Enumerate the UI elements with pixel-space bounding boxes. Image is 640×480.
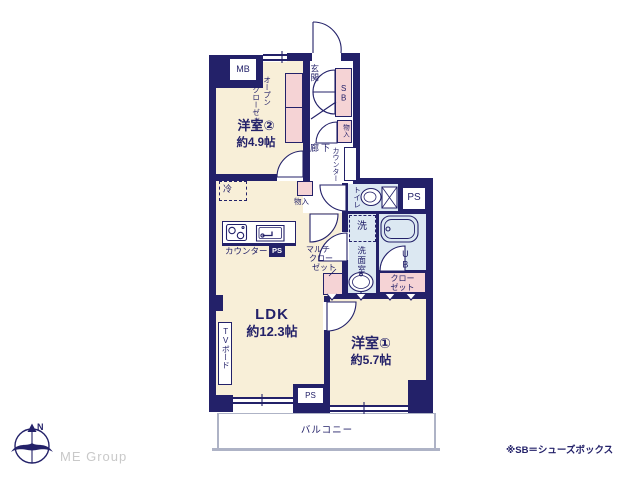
compass-arrowhead: [28, 424, 37, 433]
ps-top-label: PS: [402, 192, 426, 204]
kitchen-monoire-label: 物入: [294, 198, 309, 207]
closet-chevron: [385, 294, 395, 300]
yoshitsu1-size: 約5.7帖: [321, 354, 421, 368]
closet-label-line2: ゼット: [379, 283, 426, 292]
yoshitsu2-name: 洋室②: [206, 119, 306, 134]
mb-label: MB: [230, 64, 256, 74]
bathtub-drain: [386, 227, 390, 231]
stove-dot: [242, 227, 244, 229]
multi-closet-label-line3: ゼット: [312, 263, 336, 272]
fridge-label: 冷: [223, 184, 232, 194]
plan-graphics: [0, 0, 640, 480]
multi-closet-label-line2: クロー: [309, 254, 333, 263]
washroom-label: 洗面室: [356, 246, 366, 275]
genkan-label: 玄関: [309, 64, 319, 82]
sb-note: ※SB＝シューズボックス: [506, 446, 613, 457]
monoire-folding-door-icon: [316, 122, 337, 143]
ps-bottom-label: PS: [297, 391, 324, 400]
stove-burner: [237, 232, 243, 238]
ldk-size: 約12.3帖: [222, 325, 322, 340]
closet-chevron: [406, 294, 416, 300]
yoshitsu2-door-arc: [277, 151, 303, 177]
tv-board-label: TVボード: [221, 327, 230, 369]
floor-plan-image: MB 玄関 SB 物入 廊下 カウンター オープン クローゼット 洋室② 約4.…: [0, 0, 640, 480]
yoshitsu1-door-arc: [327, 302, 356, 331]
entrance-door-arc: [313, 22, 341, 53]
multi-closet-label-line1: マルチ: [306, 245, 330, 254]
closet-chevron: [356, 294, 366, 300]
closet-chevron: [327, 294, 337, 300]
corridor-counter-label: カウンター: [331, 147, 339, 182]
compass-n-label: N: [37, 422, 44, 432]
sb-label: SB: [339, 84, 348, 103]
balcony-label: バルコニー: [277, 426, 377, 437]
closet-label-line1: クロー: [379, 274, 426, 283]
entrance-monoire-label: 物入: [341, 124, 348, 138]
stove-burner: [229, 227, 235, 233]
yoshitsu2-size: 約4.9帖: [206, 137, 306, 150]
washer-label: 洗: [357, 221, 367, 233]
open-closet-label-1: オープン: [262, 76, 271, 106]
toilet-label: トイレ: [352, 186, 361, 209]
toilet-door-arc: [320, 185, 346, 211]
yoshitsu1-name: 洋室①: [321, 335, 421, 351]
ps-kitchen-label: PS: [269, 247, 285, 256]
kitchen-counter-label: カウンター: [225, 247, 268, 257]
ldk-name: LDK: [222, 306, 322, 323]
logo-text: ME Group: [60, 450, 127, 465]
bathtub-icon-inner: [385, 220, 415, 239]
ub-label: UB: [400, 249, 410, 270]
